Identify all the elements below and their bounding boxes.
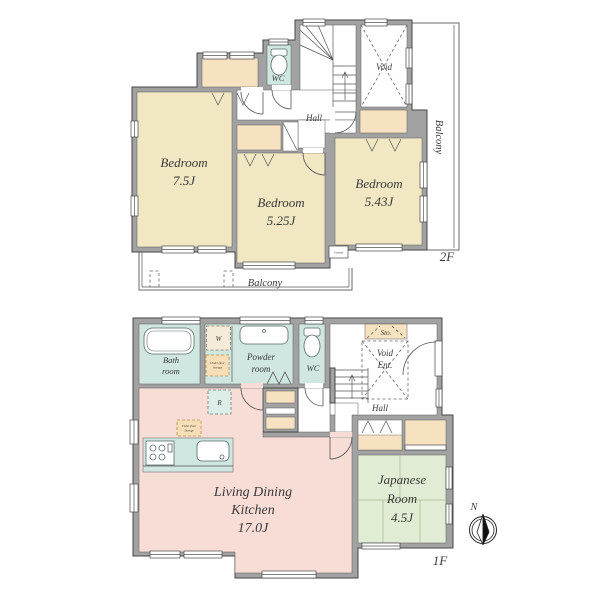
bedroom3-name: Bedroom	[355, 176, 402, 191]
japanese-room-label: Room	[386, 491, 417, 506]
sto-label: Sto.	[381, 329, 392, 337]
entrance-door-slab	[435, 341, 442, 376]
bedroom1-name: Bedroom	[160, 155, 207, 170]
compass-north-label: N	[470, 502, 479, 513]
floor-1f: W Under-floor Storage R Under-floor Stor…	[130, 317, 497, 578]
sink-icon	[197, 441, 229, 461]
bedroom1-size: 7.5J	[173, 173, 196, 188]
kitchen-counter	[143, 438, 233, 472]
void-label: Void	[376, 62, 393, 72]
underfloor-label: Under-floor	[210, 361, 225, 365]
corridor-1f	[298, 388, 330, 432]
japanese-room-label: Japanese	[378, 472, 427, 487]
room-bedroom-5-43j	[335, 138, 422, 245]
underfloor-storage-box-2: Under-floor Storage	[177, 420, 201, 436]
hall-1f-label: Hall	[371, 403, 389, 413]
floor-1f-label: 1F	[433, 553, 449, 568]
wc-2f-label: WC	[272, 73, 285, 83]
wall-segment	[330, 368, 335, 403]
floor-2f-label: 2F	[440, 249, 456, 264]
void-1f-label: Void	[377, 348, 394, 358]
toilet-icon-1f	[304, 328, 320, 357]
basin-icon	[240, 326, 288, 344]
bath-label: room	[162, 366, 180, 376]
storage-column	[263, 388, 298, 432]
counter-label: Counter	[334, 251, 345, 255]
balcony-right-label: Balcony	[433, 120, 444, 155]
hall-2f	[298, 120, 325, 148]
toilet-icon	[271, 49, 287, 75]
balcony-drain-mark	[150, 271, 159, 287]
ldk-size: 17.0J	[238, 521, 270, 536]
fridge-label: R	[216, 399, 222, 407]
balcony-drain-mark	[224, 271, 233, 287]
underfloor-label: Storage	[213, 366, 223, 370]
floor-2f: Balcony Balcony Counter	[131, 19, 459, 290]
balcony-bottom-label: Balcony	[248, 278, 283, 289]
hall-2f	[237, 90, 356, 120]
closet-bedroom3	[360, 110, 407, 133]
bedroom2-size: 5.25J	[267, 213, 297, 228]
bedroom2-name: Bedroom	[257, 195, 304, 210]
washer-box: W	[207, 326, 231, 350]
underfloor-label: Under-floor	[182, 424, 197, 428]
hall-2f-label: Hall	[305, 113, 323, 123]
powder-label: room	[252, 364, 271, 374]
bathtub-icon	[144, 328, 194, 354]
ent-label: Ent.	[377, 360, 393, 370]
floor-plan-drawing: Balcony Balcony Counter	[0, 0, 600, 600]
ldk-label: Living Dining	[213, 485, 292, 500]
bedroom3-size: 5.43J	[365, 194, 395, 209]
stove-icon	[146, 441, 174, 465]
underfloor-label: Storage	[184, 429, 194, 433]
bath-label: Bath	[163, 355, 179, 365]
closet-bedroom2	[237, 125, 281, 150]
closet-bedroom1	[202, 58, 258, 87]
japanese-room-size: 4.5J	[391, 510, 414, 525]
compass-icon: N	[470, 502, 497, 545]
closet-door-panel	[283, 122, 298, 151]
wc-1f-label: WC	[307, 363, 320, 373]
fridge-box: R	[208, 390, 231, 414]
ldk-label: Kitchen	[230, 503, 275, 518]
powder-label: Powder	[246, 352, 275, 362]
underfloor-storage-box: Under-floor Storage	[206, 355, 229, 376]
floor-plan-page: Balcony Balcony Counter	[0, 0, 600, 600]
